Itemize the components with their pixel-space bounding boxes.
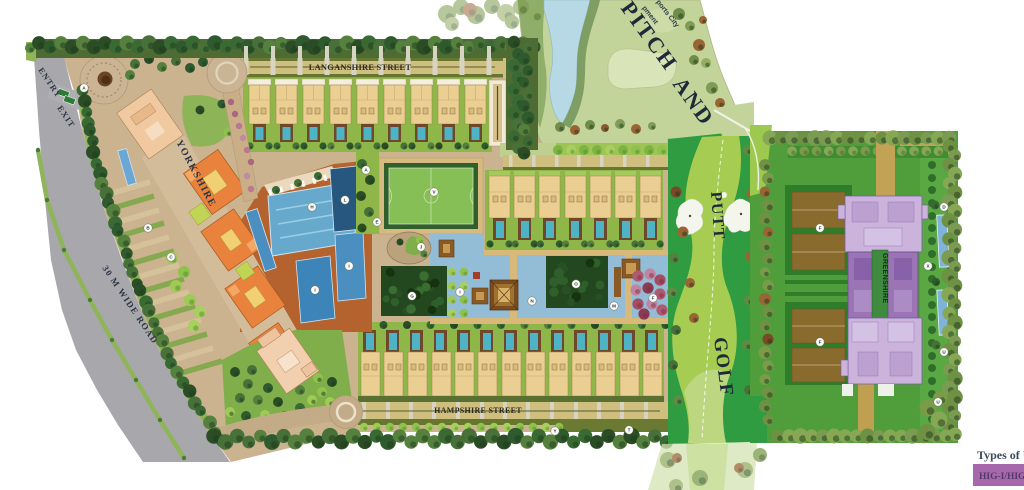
svg-text:L: L: [344, 198, 347, 203]
svg-text:LANGANSHIRE STREET: LANGANSHIRE STREET: [309, 62, 412, 72]
svg-text:Types of Un: Types of Un: [977, 448, 1024, 462]
svg-text:I: I: [314, 288, 315, 293]
svg-text:G: G: [410, 294, 414, 299]
svg-text:T: T: [628, 428, 631, 433]
svg-text:I: I: [459, 290, 460, 295]
svg-text:F: F: [819, 226, 822, 231]
svg-text:HAMPSHIRE STREET: HAMPSHIRE STREET: [434, 406, 522, 415]
svg-text:J: J: [420, 245, 423, 250]
svg-text:O: O: [574, 282, 578, 287]
svg-text:GREENSHIRE: GREENSHIRE: [881, 253, 890, 304]
svg-text:M: M: [612, 304, 616, 309]
svg-text:F: F: [652, 296, 655, 301]
svg-text:I: I: [348, 264, 349, 269]
svg-text:Y: Y: [553, 429, 556, 434]
svg-text:PUTT: PUTT: [707, 191, 727, 241]
svg-text:E: E: [375, 220, 378, 225]
svg-text:HIG-I/HIG: HIG-I/HIG: [979, 472, 1024, 482]
svg-text:F: F: [819, 340, 822, 345]
